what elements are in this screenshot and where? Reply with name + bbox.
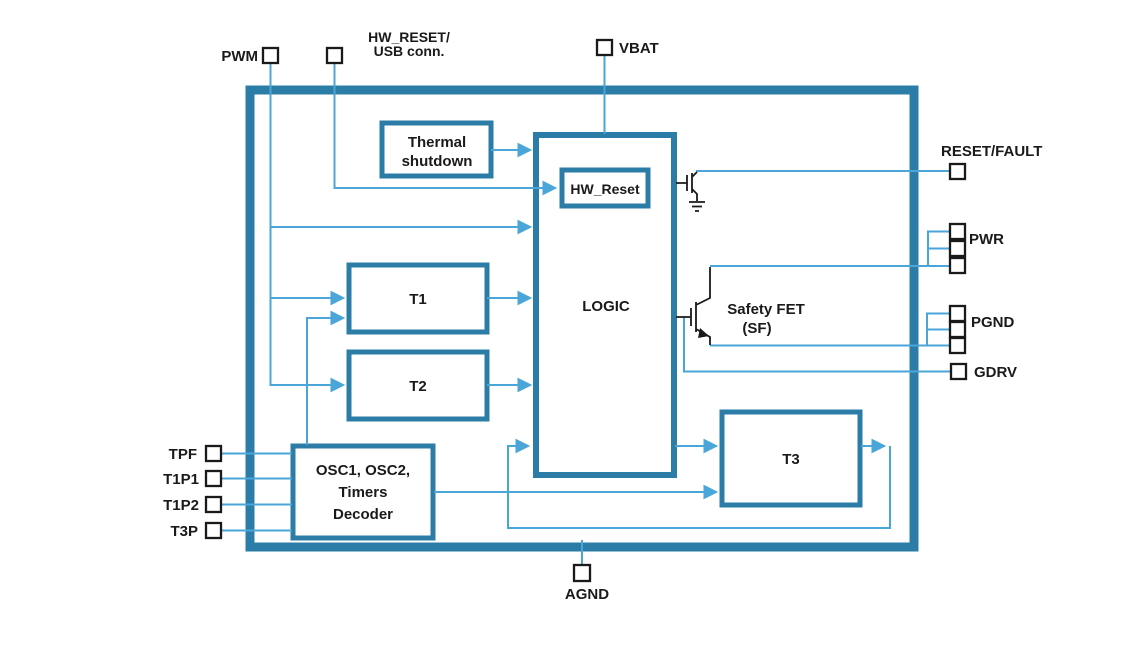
pin-pgnd-3 xyxy=(950,338,965,353)
block-diagram: PWM HW_RESET/ USB conn. VBAT RESET/FAULT… xyxy=(0,0,1134,645)
t2-label: T2 xyxy=(409,378,427,395)
t3p-label: T3P xyxy=(170,523,198,540)
pin-tpf xyxy=(206,446,221,461)
t1-label: T1 xyxy=(409,291,427,308)
safety-fet-label-line1: Safety FET xyxy=(727,301,805,318)
wire-pwr-riser xyxy=(928,232,950,267)
pin-hw-reset-usb xyxy=(327,48,342,63)
t1p2-label: T1P2 xyxy=(163,497,199,514)
pin-pwr-1 xyxy=(950,224,965,239)
pin-gdrv xyxy=(951,364,966,379)
tpf-label: TPF xyxy=(169,446,197,463)
pin-pgnd-1 xyxy=(950,306,965,321)
pin-pwm xyxy=(263,48,278,63)
osc-label-line3: Decoder xyxy=(333,506,393,523)
gdrv-label: GDRV xyxy=(974,364,1017,381)
osc-label-line1: OSC1, OSC2, xyxy=(316,462,410,479)
pwr-label: PWR xyxy=(969,231,1004,248)
wire-osc-to-t1 xyxy=(307,318,343,445)
osc-label-line2: Timers xyxy=(339,484,388,501)
hw-reset-block-label: HW_Reset xyxy=(570,181,640,197)
pgnd-label: PGND xyxy=(971,314,1015,331)
hw-reset-usb-label-line2: USB conn. xyxy=(374,43,445,59)
t3-label: T3 xyxy=(782,451,800,468)
pin-reset-fault xyxy=(950,164,965,179)
t1p1-label: T1P1 xyxy=(163,471,199,488)
pin-vbat xyxy=(597,40,612,55)
safety-fet-label-line2: (SF) xyxy=(742,320,771,337)
pwm-label: PWM xyxy=(221,48,258,65)
thermal-label-line1: Thermal xyxy=(408,134,466,151)
pin-pwr-2 xyxy=(950,241,965,256)
logic-label: LOGIC xyxy=(582,298,630,315)
reset-fault-label: RESET/FAULT xyxy=(941,143,1042,160)
pin-agnd xyxy=(574,565,590,581)
pin-pwr-3 xyxy=(950,258,965,273)
thermal-label-line2: shutdown xyxy=(402,153,473,170)
wire-pgnd-riser xyxy=(927,314,950,346)
reset-transistor-icon xyxy=(676,172,705,211)
pin-t1p2 xyxy=(206,497,221,512)
pin-t1p1 xyxy=(206,471,221,486)
ground-icon xyxy=(689,202,705,211)
safety-fet-icon xyxy=(676,267,710,345)
pin-pgnd-2 xyxy=(950,322,965,337)
pin-t3p xyxy=(206,523,221,538)
agnd-label: AGND xyxy=(565,586,609,603)
vbat-label: VBAT xyxy=(619,40,659,57)
